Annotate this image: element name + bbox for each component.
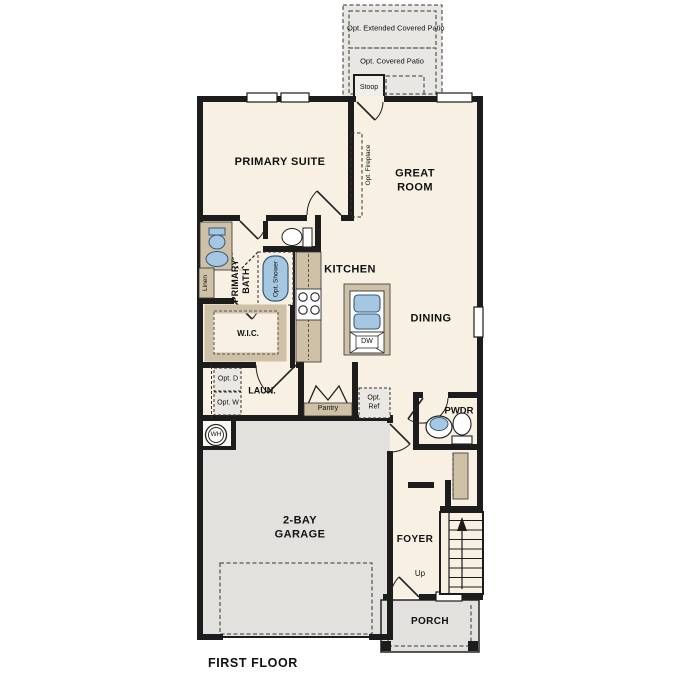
foyer-label: FOYER: [397, 534, 433, 546]
sink-icon: [206, 252, 228, 267]
foyer-closet: [453, 453, 468, 499]
opt-fridge-label: Opt. Ref: [361, 394, 387, 412]
window: [437, 93, 472, 102]
floor-plan-drawing: [0, 0, 687, 687]
kitchen-label: KITCHEN: [324, 263, 376, 276]
opt-shower-label: Opt. Shower: [272, 260, 279, 298]
great-room-label: GREAT ROOM: [383, 167, 447, 195]
opt-dryer-label: Opt. D: [216, 376, 240, 385]
powder-label: PWDR: [444, 405, 473, 416]
wic-label: W.I.C.: [237, 329, 259, 339]
stairs-up-label: Up: [415, 569, 425, 579]
garage-label: 2-BAY GARAGE: [261, 514, 339, 542]
dishwasher-label: DW: [361, 338, 373, 346]
laundry-label: LAUN.: [248, 386, 276, 397]
opt-extended-patio-label: Opt. Extended Covered Patio: [347, 24, 435, 33]
window: [474, 307, 483, 337]
porch-post: [468, 641, 478, 651]
linen-label: Linen: [202, 275, 210, 291]
porch-post: [381, 641, 391, 651]
primary-bath-label: PRIMARY BATH: [230, 253, 253, 309]
window: [247, 93, 277, 102]
plan-title: FIRST FLOOR: [208, 656, 298, 671]
opt-washer-label: Opt. W: [216, 400, 240, 409]
floor-plan: Opt. Extended Covered Patio Opt. Covered…: [0, 0, 687, 687]
primary-suite-label: PRIMARY SUITE: [234, 156, 326, 170]
dining-label: DINING: [411, 312, 452, 325]
porch-label: PORCH: [411, 616, 449, 628]
toilet-icon: [303, 228, 312, 247]
stoop-label: Stoop: [360, 84, 378, 92]
water-heater-label: WH: [211, 431, 222, 439]
pantry-label: Pantry: [318, 405, 338, 413]
stairs: [440, 512, 483, 594]
window: [281, 93, 309, 102]
opt-fireplace-label: Opt. Fireplace: [365, 145, 373, 186]
opt-covered-patio-label: Opt. Covered Patio: [360, 57, 424, 66]
patio-area: [343, 5, 442, 101]
toilet-icon: [209, 228, 225, 235]
rear-door-opening: [356, 96, 384, 102]
closet-shelf: [453, 453, 468, 499]
